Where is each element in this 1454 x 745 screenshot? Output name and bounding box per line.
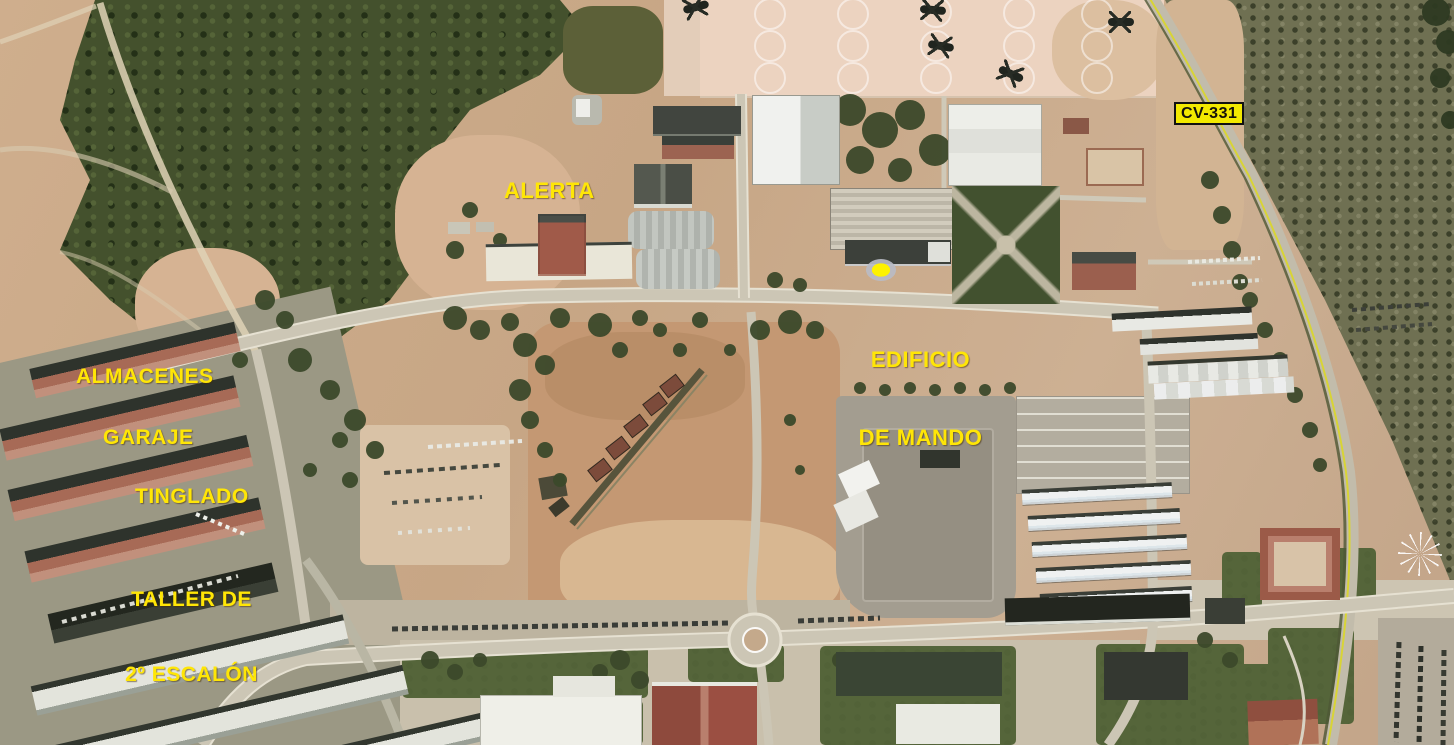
road-sign-cv331: CV-331 — [1174, 102, 1244, 125]
map-label-alerta: ALERTA — [504, 178, 595, 204]
map-label-tinglado: TINGLADO — [135, 485, 249, 509]
road-sign-text: CV-331 — [1181, 105, 1237, 122]
map-label-edificio-de-mando: EDIFICIO DE MANDO — [838, 295, 1003, 503]
label-line-2: DE MANDO — [838, 425, 1003, 451]
label-text: GARAJE — [103, 426, 194, 449]
satellite-map: ALERTA EDIFICIO DE MANDO ALMACENES GARAJ… — [0, 0, 1454, 745]
label-text: ALMACENES — [76, 365, 214, 388]
label-text: ALERTA — [504, 178, 595, 203]
label-line-1: TALLER DE — [104, 587, 279, 612]
label-text: TINGLADO — [135, 485, 249, 508]
edificio-de-mando-marker — [866, 259, 896, 281]
label-line-1: EDIFICIO — [838, 347, 1003, 373]
map-label-garaje: GARAJE — [103, 426, 194, 450]
map-label-almacenes: ALMACENES — [76, 365, 214, 389]
map-label-taller: TALLER DE 2º ESCALÓN — [104, 537, 279, 737]
label-line-2: 2º ESCALÓN — [104, 662, 279, 687]
